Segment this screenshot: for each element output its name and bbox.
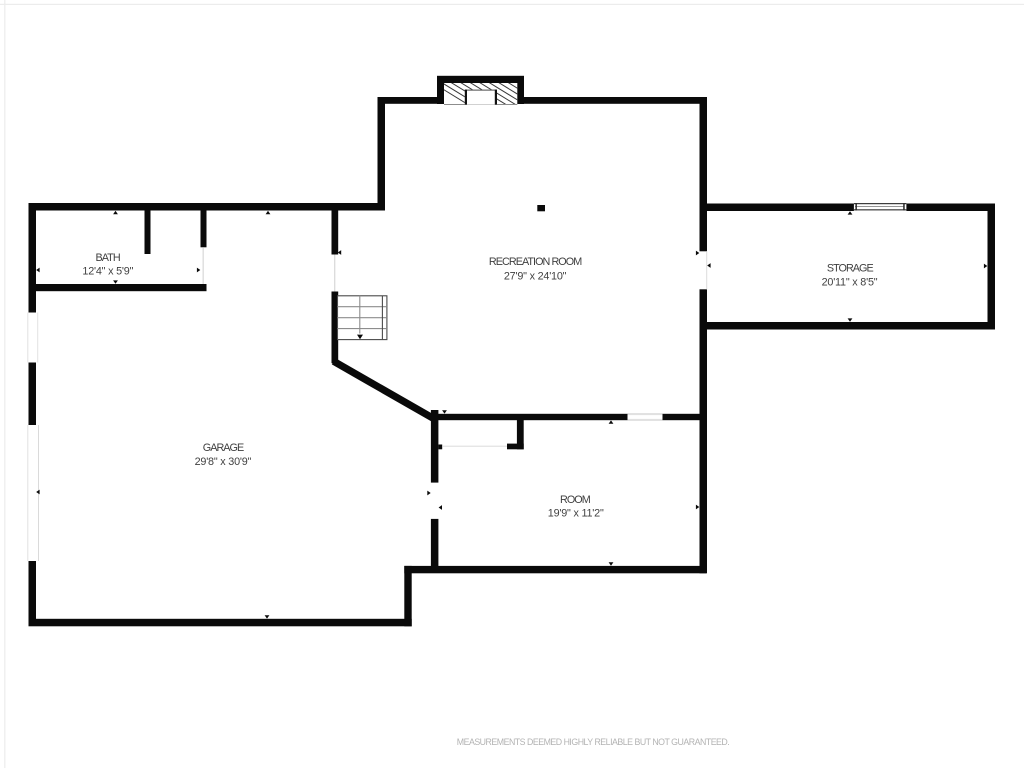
svg-text:20'11" x 8'5": 20'11" x 8'5" bbox=[822, 277, 878, 289]
svg-text:27'9" x 24'10": 27'9" x 24'10" bbox=[504, 270, 567, 282]
svg-text:BATH: BATH bbox=[95, 252, 119, 264]
svg-text:29'8" x 30'9": 29'8" x 30'9" bbox=[195, 456, 252, 468]
svg-text:STORAGE: STORAGE bbox=[827, 262, 874, 274]
svg-text:RECREATION ROOM: RECREATION ROOM bbox=[489, 256, 582, 268]
svg-text:GARAGE: GARAGE bbox=[203, 442, 244, 454]
svg-text:19'9" x 11'2": 19'9" x 11'2" bbox=[548, 508, 604, 520]
svg-text:12'4" x 5'9": 12'4" x 5'9" bbox=[82, 266, 133, 278]
svg-text:MEASUREMENTS DEEMED HIGHLY REL: MEASUREMENTS DEEMED HIGHLY RELIABLE BUT … bbox=[457, 737, 730, 747]
svg-text:ROOM: ROOM bbox=[560, 494, 591, 506]
